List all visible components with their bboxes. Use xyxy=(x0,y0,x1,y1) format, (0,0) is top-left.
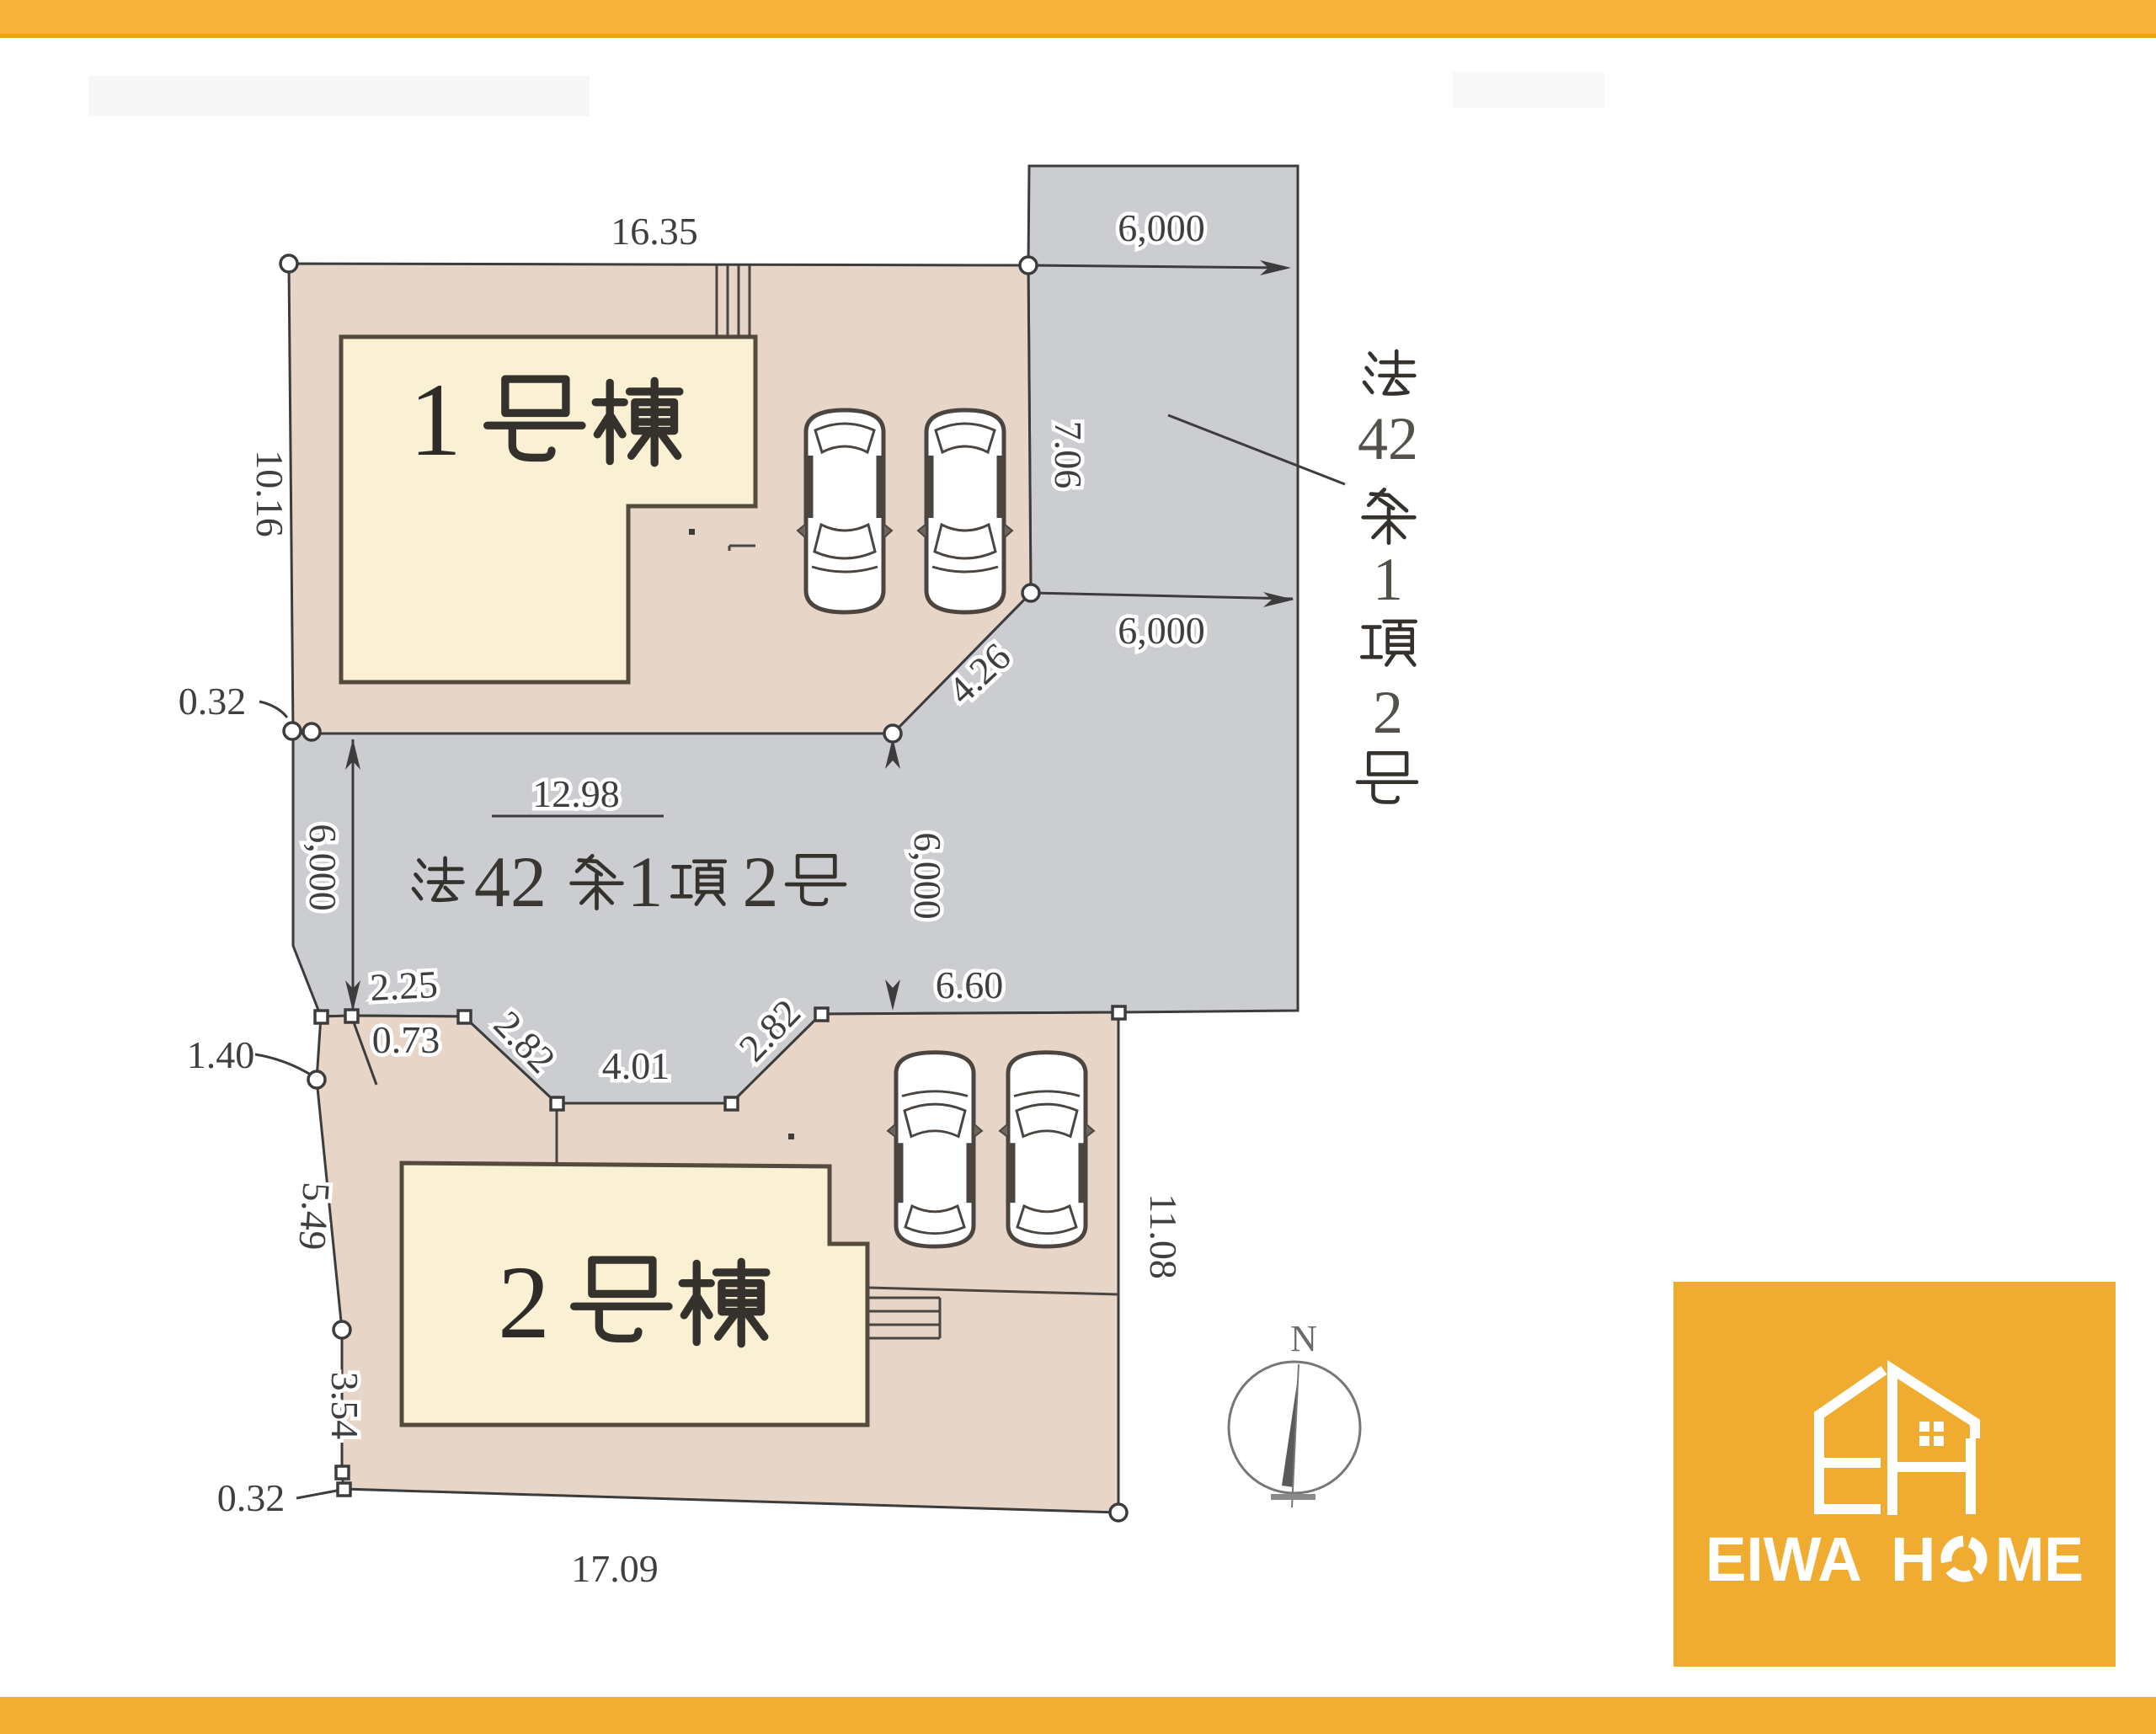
svg-text:0.73: 0.73 xyxy=(372,1018,440,1061)
svg-text:1: 1 xyxy=(409,362,462,478)
svg-text:1.40: 1.40 xyxy=(187,1033,255,1076)
svg-text:10.16: 10.16 xyxy=(248,450,291,537)
svg-text:6.60: 6.60 xyxy=(936,963,1004,1006)
svg-text:H: H xyxy=(1891,1524,1935,1594)
svg-text:16.35: 16.35 xyxy=(611,210,698,253)
svg-text:17.09: 17.09 xyxy=(571,1547,659,1590)
svg-text:0.32: 0.32 xyxy=(217,1476,286,1519)
svg-text:3.54: 3.54 xyxy=(323,1372,366,1440)
svg-text:6,000: 6,000 xyxy=(1118,609,1205,652)
svg-text:42: 42 xyxy=(1358,405,1418,472)
svg-text:12.98: 12.98 xyxy=(532,772,620,815)
svg-text:6,000: 6,000 xyxy=(1118,206,1205,249)
svg-text:1: 1 xyxy=(627,841,664,922)
svg-text:6,000: 6,000 xyxy=(302,824,344,911)
svg-text:2.25: 2.25 xyxy=(369,963,439,1009)
svg-text:1: 1 xyxy=(1373,546,1403,613)
svg-text:6,000: 6,000 xyxy=(906,832,949,920)
svg-text:4.01: 4.01 xyxy=(602,1044,670,1087)
svg-text:5.49: 5.49 xyxy=(291,1181,338,1251)
svg-text:N: N xyxy=(1290,1318,1317,1359)
svg-text:7.06: 7.06 xyxy=(1047,421,1090,489)
svg-text:11.08: 11.08 xyxy=(1142,1193,1185,1279)
svg-text:EIWA: EIWA xyxy=(1705,1524,1862,1594)
svg-text:0.32: 0.32 xyxy=(179,680,247,723)
svg-text:2: 2 xyxy=(743,841,779,922)
svg-text:2: 2 xyxy=(498,1245,550,1360)
svg-text:42: 42 xyxy=(474,841,547,922)
svg-text:2: 2 xyxy=(1373,679,1403,746)
svg-text:ME: ME xyxy=(1995,1524,2084,1594)
